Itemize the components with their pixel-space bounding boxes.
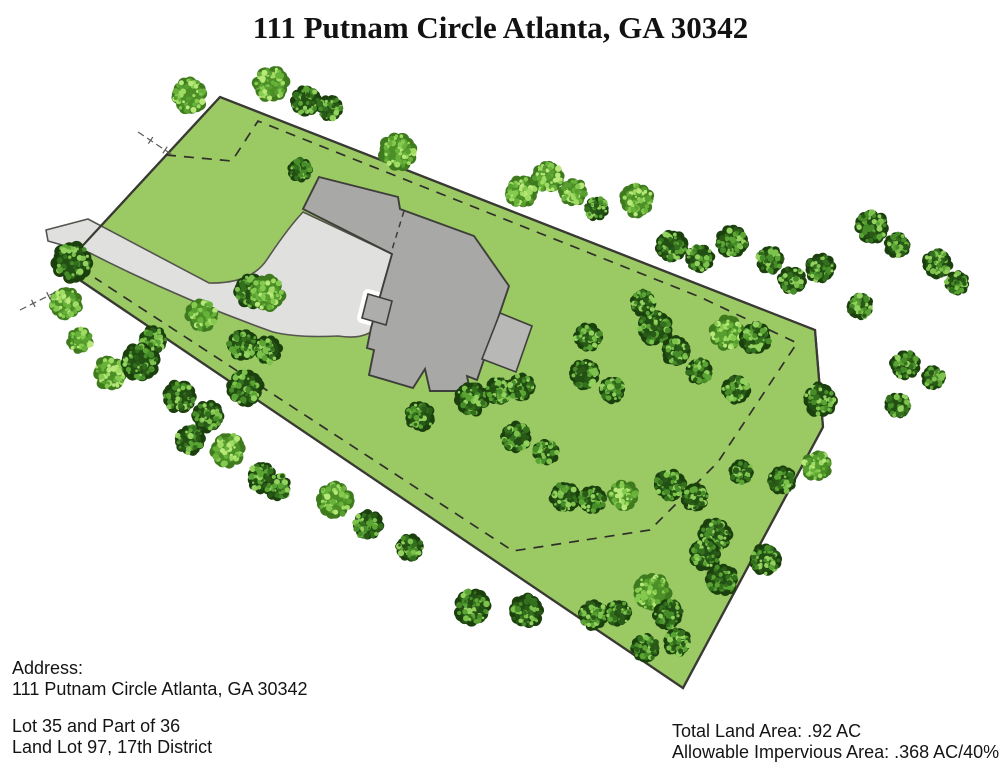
tree: [209, 433, 245, 469]
site-plan-map: [0, 0, 1001, 768]
tree: [163, 380, 197, 413]
tree: [889, 350, 921, 380]
lot-block: Lot 35 and Part of 36 Land Lot 97, 17th …: [12, 716, 212, 758]
tree: [395, 533, 424, 561]
tree: [454, 588, 491, 626]
area-block: Total Land Area: .92 AC Allowable Imperv…: [672, 721, 999, 763]
tree: [715, 225, 749, 258]
allowable-impervious-area: Allowable Impervious Area: .368 AC/40%: [672, 742, 999, 762]
tree: [884, 232, 911, 258]
tree: [884, 393, 911, 419]
page-title: 111 Putnam Circle Atlanta, GA 30342: [0, 10, 1001, 46]
tree: [352, 509, 384, 540]
tree: [847, 293, 873, 321]
survey-tie-line: [138, 132, 174, 156]
tree: [172, 77, 208, 115]
site-plan-page: 111 Putnam Circle Atlanta, GA 30342 Addr…: [0, 0, 1001, 768]
lot-line1: Lot 35 and Part of 36: [12, 716, 180, 736]
tree: [262, 473, 291, 501]
tree: [49, 287, 83, 320]
tree: [584, 196, 609, 221]
tree: [805, 253, 836, 284]
tree: [801, 450, 831, 481]
address-label: Address:: [12, 658, 83, 678]
tree: [777, 266, 807, 294]
tree: [655, 230, 688, 262]
total-land-area: Total Land Area: .92 AC: [672, 721, 861, 741]
tree: [921, 365, 946, 390]
tree: [755, 246, 784, 275]
tree: [854, 209, 888, 243]
address-block: Address: 111 Putnam Circle Atlanta, GA 3…: [12, 658, 308, 700]
tree: [252, 66, 291, 102]
address-value: 111 Putnam Circle Atlanta, GA 30342: [12, 679, 308, 699]
tree: [66, 327, 93, 354]
tree: [509, 593, 544, 628]
tree: [316, 481, 355, 519]
lot-line2: Land Lot 97, 17th District: [12, 737, 212, 757]
tree: [619, 183, 654, 219]
tree: [685, 244, 715, 273]
tree: [290, 85, 322, 116]
